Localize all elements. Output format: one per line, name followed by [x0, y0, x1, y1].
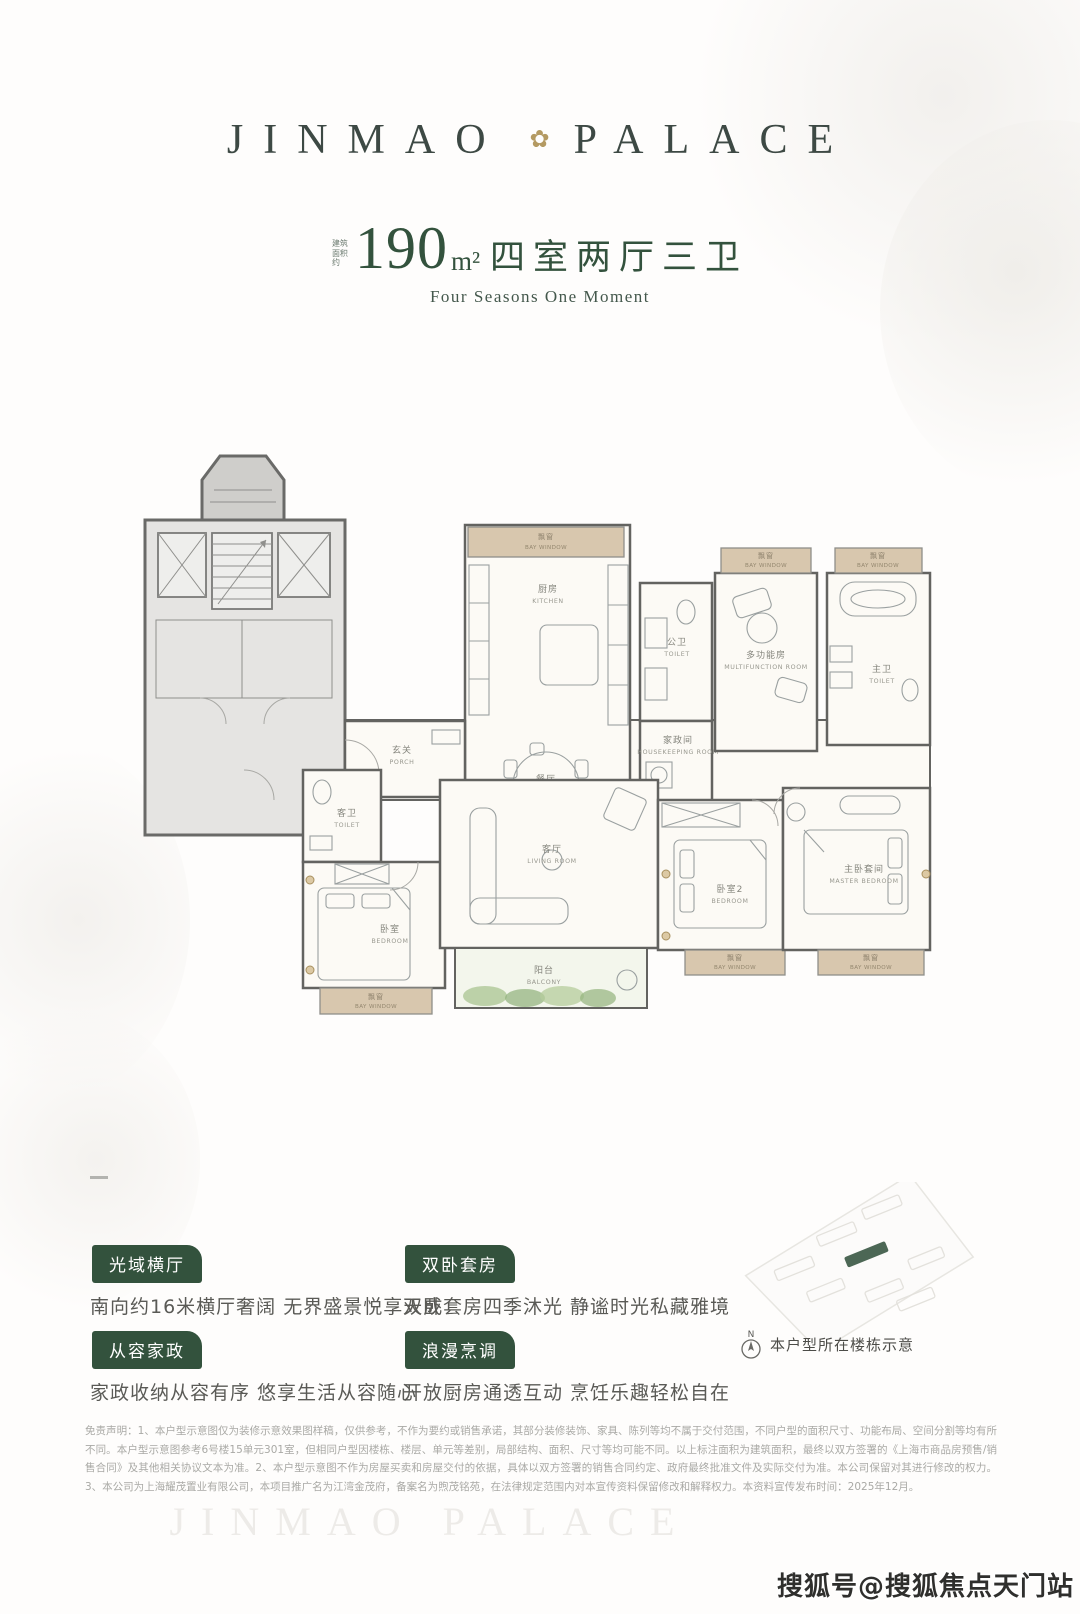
bay-window-label-en: BAY WINDOW: [857, 563, 899, 569]
locator-caption: 本户型所在楼栋示意: [770, 1334, 914, 1355]
brand-emblem-icon: ✿: [530, 127, 550, 153]
floorplan-drawing: 飘窗 BAY WINDOW 厨房 KITCHEN 餐厅 DINNER 公卫: [140, 440, 940, 1020]
guest-toilet-label-en: TOILET: [333, 822, 360, 829]
master-bedroom-room: 主卧套间 MASTER BEDROOM 飘窗 BAY WINDOW: [774, 788, 930, 975]
brand-logo-left: JINMAO: [227, 117, 506, 163]
staircase: [212, 533, 272, 609]
balcony-label-en: BALCONY: [527, 979, 561, 986]
bay-window-label-cn: 飘窗: [870, 551, 886, 560]
housekeeping-label-en: HOUSEKEEPING ROOM: [637, 749, 719, 756]
master-toilet-label-cn: 主卫: [872, 663, 892, 675]
bay-window-label-en: BAY WINDOW: [355, 1004, 397, 1010]
bay-window-label-cn: 飘窗: [727, 953, 743, 962]
bedroom2-label-en: BEDROOM: [711, 898, 748, 905]
area-number: 190: [355, 218, 448, 278]
feature-tag-3: 从容家政: [92, 1331, 202, 1369]
bay-window-label-cn: 飘窗: [368, 992, 384, 1001]
bedroom1-label-en: BEDROOM: [371, 938, 408, 945]
compass-north-label: N: [748, 1330, 755, 1340]
sohu-watermark: 搜狐号@搜狐焦点天门站: [777, 1566, 1074, 1603]
unit-subtitle: Four Seasons One Moment: [0, 287, 1080, 307]
bay-window-label-cn: 飘窗: [758, 551, 774, 560]
bay-window-label-cn: 飘窗: [863, 953, 879, 962]
brand-logo: JINMAO✿PALACE: [0, 116, 1080, 164]
bay-window-label-cn: 飘窗: [538, 532, 554, 541]
bedroom2-room: 卧室2 BEDROOM 飘窗 BAY WINDOW: [658, 800, 785, 975]
footer-brand-watermark: JINMAO PALACE: [0, 1498, 860, 1545]
balcony-area: 阳台 BALCONY: [455, 948, 647, 1008]
living-label-en: LIVING ROOM: [527, 858, 576, 865]
bay-window-label-en: BAY WINDOW: [525, 545, 567, 551]
bay-window-label-en: BAY WINDOW: [850, 965, 892, 971]
feature-tag-2: 双卧套房: [405, 1245, 515, 1283]
bay-window-label-en: BAY WINDOW: [745, 563, 787, 569]
master-toilet-label-en: TOILET: [868, 678, 895, 685]
public-toilet-label-en: TOILET: [663, 651, 690, 658]
multifunction-label-en: MULTIFUNCTION ROOM: [724, 664, 808, 671]
feature-desc-4: 开放厨房通透互动 烹饪乐趣轻松自在: [403, 1378, 730, 1405]
guest-toilet-room: 客卫 TOILET: [303, 770, 381, 862]
feature-desc-3: 家政收纳从容有序 悠享生活从容随心: [90, 1378, 417, 1405]
feature-tag-4: 浪漫烹调: [405, 1331, 515, 1369]
housekeeping-label-cn: 家政间: [663, 734, 693, 746]
kitchen-label-cn: 厨房: [538, 583, 558, 595]
master-bedroom-label-en: MASTER BEDROOM: [829, 878, 898, 885]
bedroom1-label-cn: 卧室: [380, 923, 400, 935]
bedroom2-label-cn: 卧室2: [717, 883, 744, 895]
master-bedroom-label-cn: 主卧套间: [844, 863, 884, 875]
locator-caption-row: N 本户型所在楼栋示意: [740, 1328, 914, 1360]
area-prefix-label: 建筑面积约: [332, 239, 350, 268]
balcony-label-cn: 阳台: [534, 964, 554, 976]
feature-tag-1: 光域横厅: [92, 1245, 202, 1283]
compass-icon: N: [740, 1328, 762, 1360]
feature-desc-1: 南向约16米横厅奢阔 无界盛景悦享天成: [90, 1292, 443, 1319]
area-unit: m²: [451, 248, 480, 275]
porch-label-cn: 玄关: [392, 744, 412, 756]
master-toilet-room: 飘窗 BAY WINDOW 主卫 TOILET: [827, 548, 930, 745]
multifunction-label-cn: 多功能房: [746, 649, 786, 661]
brand-logo-right: PALACE: [574, 117, 854, 163]
section-divider-dash: [90, 1176, 108, 1179]
public-toilet-room: 公卫 TOILET: [640, 583, 712, 721]
living-label-cn: 客厅: [542, 843, 562, 855]
multifunction-room: 飘窗 BAY WINDOW 多功能房 MULTIFUNCTION ROOM: [715, 548, 817, 751]
feature-desc-2: 双卧套房四季沐光 静谧时光私藏雅境: [403, 1292, 730, 1319]
unit-title: 建筑面积约 190 m² 四室两厅三卫: [0, 218, 1080, 278]
kitchen-label-en: KITCHEN: [532, 598, 563, 605]
living-room: 客厅 LIVING ROOM: [440, 780, 658, 948]
disclaimer-text: 免责声明：1、本户型示意图仅为装修示意效果图样稿，仅供参考，不作为要约或销售承诺…: [85, 1422, 997, 1497]
bedroom1-room: 卧室 BEDROOM 飘窗 BAY WINDOW: [303, 862, 445, 1014]
building-locator-diagram: [728, 1182, 980, 1340]
layout-text: 四室两厅三卫: [490, 241, 748, 276]
public-toilet-label-cn: 公卫: [667, 637, 687, 648]
porch-label-en: PORCH: [390, 759, 415, 766]
guest-toilet-label-cn: 客卫: [337, 807, 357, 819]
bay-window-label-en: BAY WINDOW: [714, 965, 756, 971]
